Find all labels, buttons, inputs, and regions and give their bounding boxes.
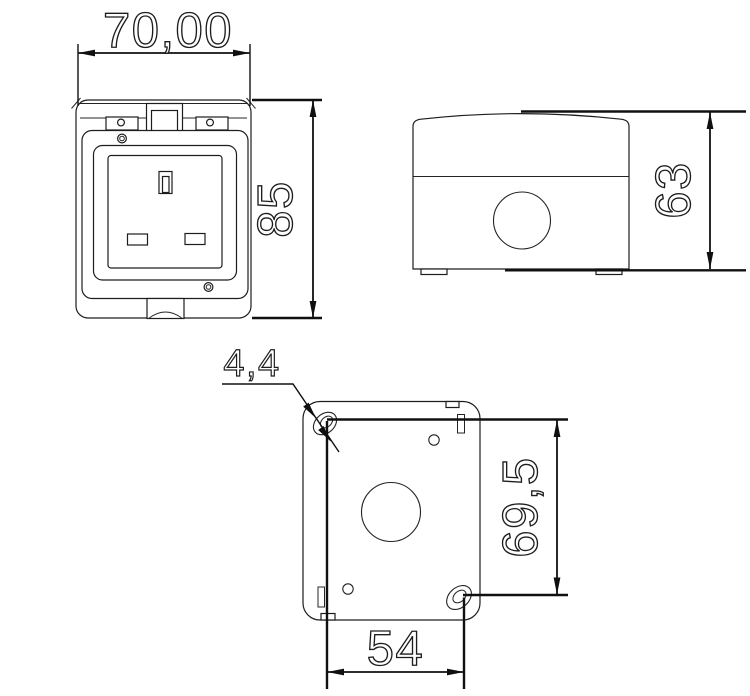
hspacing-arrow-right [447, 669, 464, 676]
dim-hole-spacing-vertical-label: 69,5 [494, 456, 548, 557]
dim-width-label: 70,00 [103, 4, 233, 58]
neutral-pin-slot [128, 234, 148, 245]
dim-depth-label: 63 [647, 161, 701, 219]
socket-dimension-drawing: 70,00 85 63 [0, 0, 750, 696]
hinge-pin-right [207, 119, 214, 126]
dim-hole-spacing-horizontal-label: 54 [367, 622, 425, 676]
width-arrow-left [78, 50, 95, 57]
back-view [303, 402, 480, 621]
technical-drawing-canvas: 70,00 85 63 [0, 0, 750, 696]
height-dimension: 85 [249, 100, 322, 318]
side-body [413, 114, 629, 269]
front-view [72, 98, 256, 319]
depth-arrow-top [707, 112, 714, 129]
notch-top-edge [446, 402, 459, 408]
hinge-pin-left [118, 119, 125, 126]
side-view [413, 114, 629, 275]
hspacing-arrow-left [327, 669, 344, 676]
side-foot-left [421, 269, 447, 275]
depth-arrow-bottom [707, 252, 714, 269]
screw-bottom-right [204, 283, 213, 292]
mounting-plate [303, 402, 480, 621]
height-arrow-bottom [310, 301, 317, 318]
dim-height-label: 85 [249, 180, 303, 238]
height-arrow-top [310, 100, 317, 117]
vspacing-arrow-bottom [554, 578, 561, 595]
live-pin-slot [185, 234, 205, 245]
lid-latch-top-inner [152, 111, 178, 132]
vspacing-arrow-top [554, 420, 561, 437]
screw-top-left [118, 134, 127, 143]
dim-hole-diameter-label: 4,4 [223, 343, 280, 385]
width-dimension: 70,00 [78, 4, 250, 106]
earth-pin-slot-inner [163, 177, 170, 193]
width-arrow-right [233, 50, 250, 57]
